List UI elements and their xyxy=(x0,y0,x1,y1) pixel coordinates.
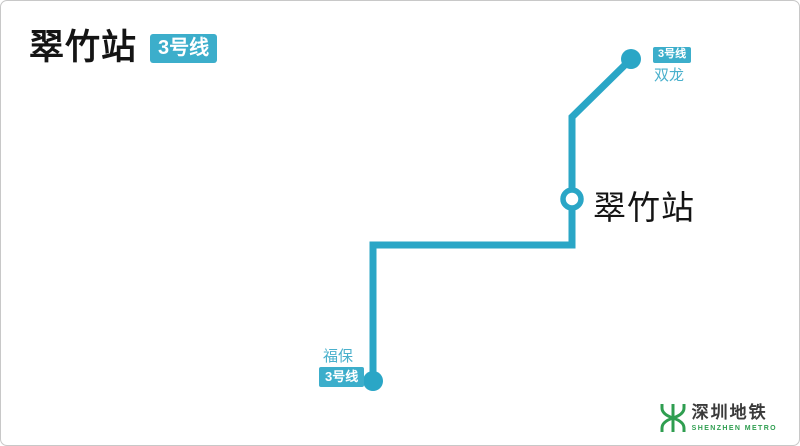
station-map-card: 翠竹站 3号线 3号线 双龙 翠竹站 福保 3号线 深圳地铁 SHENZHEN … xyxy=(0,0,800,446)
line3-badge-bottom-terminus: 3号线 xyxy=(319,367,364,387)
page-title: 翠竹站 xyxy=(29,19,137,70)
logo-text: 深圳地铁 SHENZHEN METRO xyxy=(692,404,777,432)
terminus-dot-shuanglong xyxy=(621,49,641,69)
logo-name-en: SHENZHEN METRO xyxy=(692,425,777,433)
station-label-cuizhu: 翠竹站 xyxy=(593,181,695,229)
terminus-label-fubao: 福保 xyxy=(323,345,353,366)
line3-badge-top-terminus: 3号线 xyxy=(653,47,691,63)
terminus-label-shuanglong: 双龙 xyxy=(654,64,684,85)
station-marker-cuizhu xyxy=(563,190,581,208)
line3-badge-title: 3号线 xyxy=(150,34,217,63)
shenzhen-metro-logo-icon xyxy=(659,401,687,435)
logo-name-cn: 深圳地铁 xyxy=(692,404,777,423)
shenzhen-metro-logo: 深圳地铁 SHENZHEN METRO xyxy=(659,401,777,435)
terminus-dot-fubao xyxy=(363,371,383,391)
